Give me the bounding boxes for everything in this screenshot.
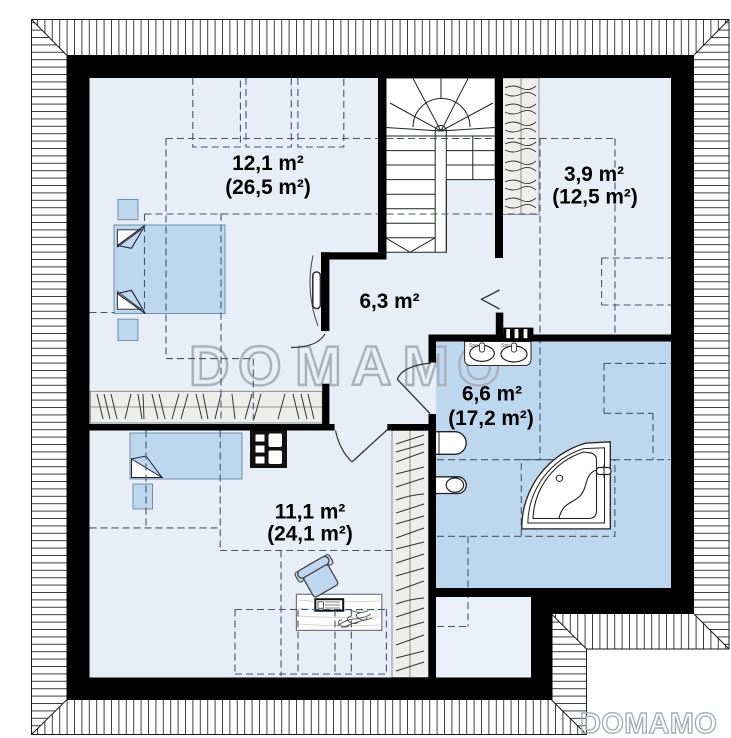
svg-text:M: M bbox=[403, 334, 450, 397]
svg-text:(26,5 m²): (26,5 m²) bbox=[225, 176, 311, 199]
svg-text:(12,5 m²): (12,5 m²) bbox=[552, 186, 638, 209]
svg-text:M: M bbox=[295, 334, 342, 397]
svg-text:3,9 m²: 3,9 m² bbox=[564, 163, 624, 186]
svg-text:(24,1 m²): (24,1 m²) bbox=[267, 523, 353, 546]
svg-text:6,6 m²: 6,6 m² bbox=[462, 383, 522, 406]
svg-text:Spo: Spo bbox=[469, 343, 478, 349]
svg-text:D: D bbox=[189, 334, 229, 397]
svg-text:A: A bbox=[351, 334, 391, 397]
svg-text:12,1 m²: 12,1 m² bbox=[232, 152, 304, 175]
svg-text:Spo: Spo bbox=[501, 343, 510, 349]
svg-text:(17,2 m²): (17,2 m²) bbox=[448, 407, 534, 430]
svg-text:DOMAMO: DOMAMO bbox=[580, 708, 717, 738]
svg-text:6,3 m²: 6,3 m² bbox=[359, 290, 419, 313]
svg-text:O: O bbox=[238, 334, 282, 397]
svg-text:11,1 m²: 11,1 m² bbox=[275, 501, 346, 524]
